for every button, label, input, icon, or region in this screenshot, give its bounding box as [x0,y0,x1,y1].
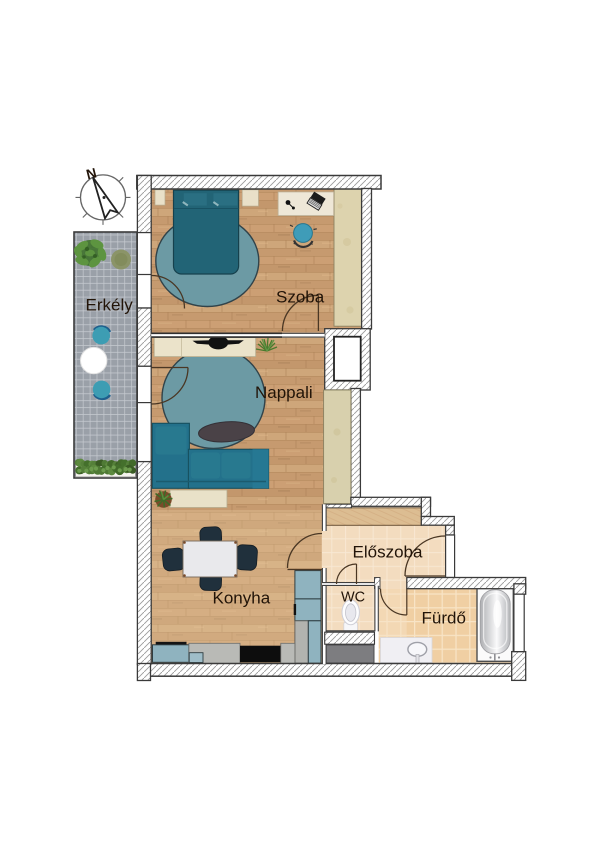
svg-text:Fürdő: Fürdő [422,609,466,628]
svg-text:Erkély: Erkély [86,296,134,315]
svg-text:Nappali: Nappali [255,383,313,402]
svg-text:Konyha: Konyha [213,589,271,608]
svg-text:Szoba: Szoba [276,288,325,307]
svg-text:WC: WC [341,590,365,606]
svg-text:N: N [85,164,99,182]
svg-text:Előszoba: Előszoba [353,543,423,562]
